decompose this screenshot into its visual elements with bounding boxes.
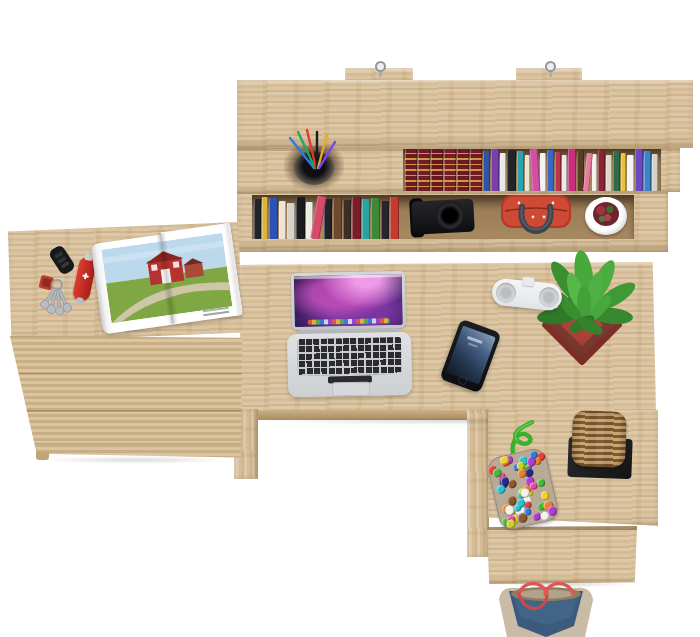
desk-set-photo: [0, 0, 700, 637]
speaker-grille-right: [537, 286, 559, 308]
lower-bookshelf-row: [254, 195, 399, 239]
laptop-keyboard-deck: [287, 332, 412, 398]
cabinet-drawers: [10, 336, 242, 460]
laptop-keyboard: [297, 337, 402, 376]
open-magazine: [90, 222, 244, 337]
speaker-grille-left: [495, 281, 517, 303]
laptop-dock: [308, 318, 390, 325]
laptop: [286, 271, 413, 398]
metal-hook-icon: [545, 61, 556, 77]
upper-bookshelf-row: [403, 149, 661, 191]
desk-leg-right: [467, 409, 489, 557]
return-drawer-unit: [487, 526, 637, 584]
cabinet-shadow: [40, 456, 230, 464]
laptop-wallpaper: [294, 274, 403, 327]
camera: [411, 194, 477, 238]
laptop-menubar: [294, 274, 402, 279]
laptop-trackpad: [332, 381, 370, 396]
metal-hook-icon: [375, 61, 386, 77]
laptop-screen: [291, 271, 406, 330]
red-handbag: [497, 193, 575, 241]
pens-icon: [280, 128, 346, 174]
denim-tote-bag: [489, 577, 603, 637]
knife-cross-icon: [82, 273, 89, 280]
speaker-clip: [522, 276, 535, 286]
wicker-basket: [571, 410, 627, 468]
shelf-plant: [593, 202, 619, 226]
